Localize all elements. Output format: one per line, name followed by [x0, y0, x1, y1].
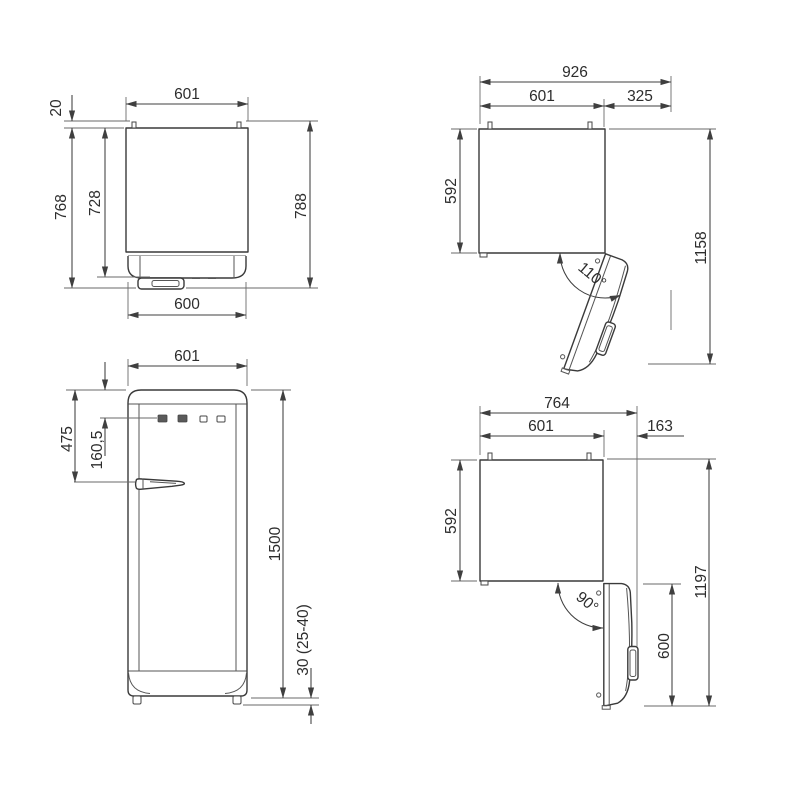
dim-label-door-span: 600 [656, 633, 673, 659]
hinge-mark [132, 122, 136, 128]
foot-mark [481, 581, 488, 585]
dim-label-door-projection: 325 [627, 88, 653, 105]
view-front: 601 475 160,5 1500 30 (25-40) [59, 348, 319, 724]
dim-label-overall-width: 764 [544, 395, 570, 412]
dim-label-feet-height: 30 (25-40) [295, 604, 312, 676]
view-top-closed: 601 20 768 728 788 600 [48, 86, 318, 319]
dim-label-cabinet-width: 601 [528, 418, 554, 435]
dim-label-height: 1500 [267, 526, 284, 561]
cabinet-outline [126, 128, 248, 252]
fridge-outline [128, 390, 247, 696]
dim-label-overall-depth: 1158 [693, 231, 710, 264]
hinge-mark [488, 122, 492, 129]
dim-label-overall-width: 926 [562, 64, 588, 81]
dim-label-hinge-protrusion: 20 [48, 99, 65, 117]
door-open-90 [597, 584, 638, 710]
dim-label-cabinet-depth: 592 [443, 178, 460, 204]
dim-label-cabinet-depth: 592 [443, 508, 460, 534]
hinge-mark [587, 453, 591, 460]
hinge-mark [588, 122, 592, 129]
dim-label-depth-without-handle: 768 [53, 194, 70, 220]
foot [233, 696, 241, 704]
dim-label-door-projection: 163 [647, 418, 673, 435]
dimension-drawing: 601 20 768 728 788 600 110° [0, 0, 800, 800]
cabinet-outline [479, 129, 605, 253]
dim-label-cabinet-width: 601 [529, 88, 555, 105]
dim-label-depth-body: 728 [87, 190, 104, 216]
dim-label-top-to-controls: 160,5 [89, 431, 106, 470]
dim-label-width-top: 601 [174, 86, 200, 103]
dim-label-depth-overall: 788 [293, 193, 310, 219]
dim-label-top-to-handle: 475 [59, 426, 76, 452]
dim-label-width: 601 [174, 348, 200, 365]
view-top-open-90: 90° 764 601 163 592 1197 600 [443, 395, 716, 709]
hinge-mark [237, 122, 241, 128]
hinge-mark [488, 453, 492, 460]
door-front-curve [128, 256, 246, 278]
cabinet-outline [480, 460, 603, 581]
dim-label-width-bottom: 600 [174, 296, 200, 313]
foot [133, 696, 141, 704]
view-top-open-110: 110° 926 601 325 592 1158 [443, 64, 716, 384]
dimension-drawing-page: 601 20 768 728 788 600 110° [0, 0, 800, 800]
dim-label-overall-depth: 1197 [693, 565, 710, 598]
foot-mark [480, 253, 487, 257]
door-handle [138, 278, 184, 289]
